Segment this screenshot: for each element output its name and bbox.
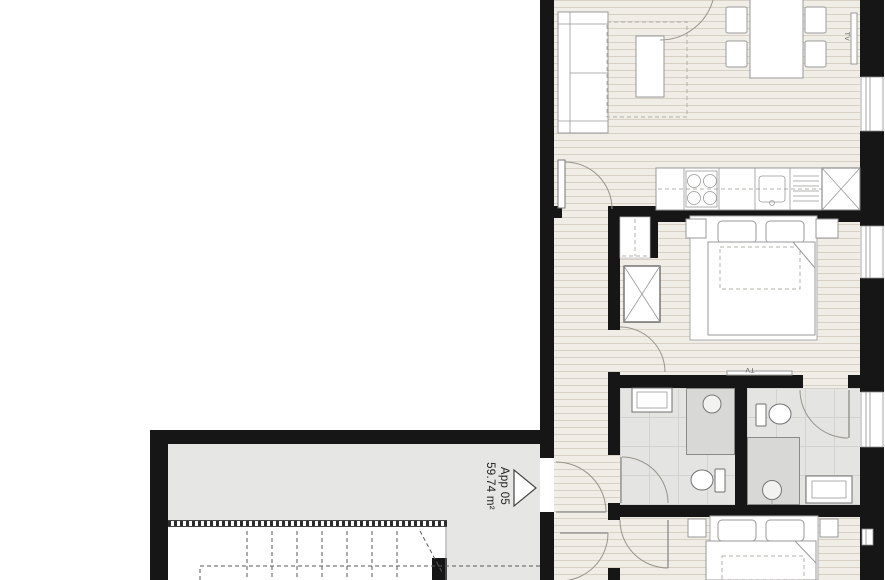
pillow [718,221,756,243]
wardrobe [624,266,660,322]
bed-double-2 [706,516,818,580]
tv-board-bedroom [727,371,792,375]
chair [726,7,747,33]
blanket [706,541,816,580]
bedroom-2-door [620,520,668,568]
bathroom-2-door [800,390,849,438]
closet-niche [620,217,650,258]
fridge [822,168,860,210]
apartment-area: 59.74 m² [483,455,497,517]
bed-double [690,216,817,340]
bathroom-2-sink [806,476,852,503]
entrance-arrow [514,470,536,506]
window-living-room [861,77,883,131]
bedroom-1-door-arc [620,327,665,372]
plan-linework [0,0,885,580]
pillow [766,221,804,243]
entrance-door [540,458,606,512]
shower-head [763,481,782,506]
window-bathroom-2 [861,392,883,447]
floor-plan: App 05 59.74 m² TV TV [0,0,885,580]
corridor-door [560,533,608,580]
chair [805,41,826,67]
window-bedroom-2 [862,529,873,545]
nightstand [686,219,706,238]
nightstand [816,219,838,238]
dining-table [750,0,803,78]
pillow [718,520,756,541]
shower-head [703,395,721,413]
apartment-label: App 05 59.74 m² [483,455,511,517]
pillow [766,520,804,541]
stair-walkline [200,566,540,580]
bathroom-1-sink [632,388,672,412]
nightstand [820,519,838,537]
living-room-door [558,160,612,209]
dining-set [726,0,826,78]
sofa [558,12,608,133]
chair [726,41,747,67]
coffee-table [636,36,664,97]
tv-label-bedroom: TV [745,366,754,373]
chair [805,7,826,33]
toilet [691,469,725,492]
nightstand [688,519,706,537]
stair-treads [247,527,446,580]
toilet [756,404,791,426]
apartment-name: App 05 [497,455,511,517]
tv-label-living-room: TV [843,32,850,41]
window-bedroom-1 [861,226,883,278]
tv-board [851,13,857,64]
bathroom-1-door [621,457,668,503]
kitchen-counter [656,168,860,210]
